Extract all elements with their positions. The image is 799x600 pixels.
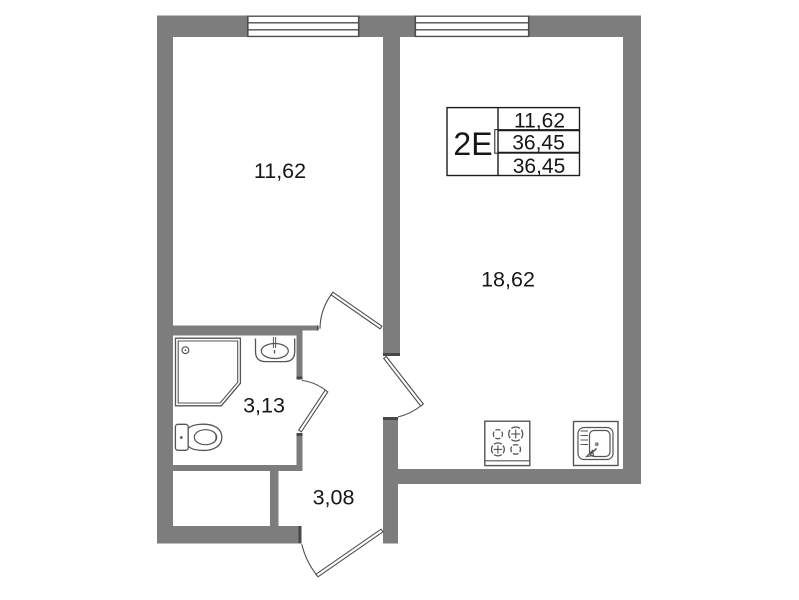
svg-text:11,62: 11,62: [514, 109, 565, 132]
svg-text:2Е: 2Е: [453, 126, 492, 162]
svg-text:36,45: 36,45: [512, 132, 565, 155]
svg-text:3,13: 3,13: [243, 394, 285, 418]
svg-text:36,45: 36,45: [513, 155, 566, 178]
svg-text:11,62: 11,62: [254, 159, 306, 183]
svg-text:18,62: 18,62: [481, 268, 535, 292]
svg-text:3,08: 3,08: [313, 486, 355, 510]
